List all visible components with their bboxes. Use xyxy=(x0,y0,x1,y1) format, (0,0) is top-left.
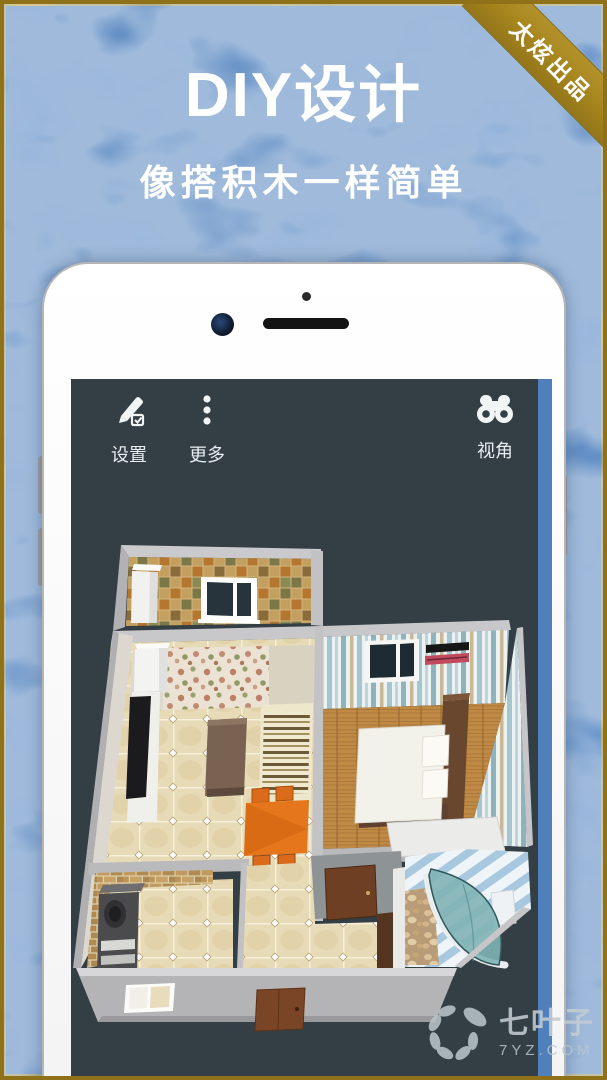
site-watermark: 七叶子 7YZ.COM xyxy=(423,997,595,1070)
pencil-edit-icon xyxy=(111,393,147,434)
settings-button[interactable]: 设置 xyxy=(111,393,147,467)
app-toolbar: 设置 更多 xyxy=(71,379,538,467)
proximity-sensor-dot xyxy=(302,292,311,301)
more-button[interactable]: 更多 xyxy=(189,393,225,467)
view-angle-label: 视角 xyxy=(477,437,513,463)
more-vertical-dots-icon xyxy=(202,393,212,434)
phone-mockup: 设置 更多 xyxy=(42,262,566,1080)
app-screen: 设置 更多 xyxy=(71,379,552,1080)
floorplan-bedroom xyxy=(323,627,533,849)
screenshot-edge-strip xyxy=(538,379,552,1080)
earpiece-speaker xyxy=(263,318,349,329)
floorplan-utility-room xyxy=(87,859,249,973)
leaf-ring-logo xyxy=(423,997,491,1070)
floorplan-kitchen xyxy=(113,545,323,631)
watermark-site-domain: 7YZ.COM xyxy=(499,1043,595,1060)
binoculars-icon xyxy=(474,393,516,430)
more-label: 更多 xyxy=(189,441,225,467)
front-camera xyxy=(211,313,234,336)
settings-label: 设置 xyxy=(111,441,147,467)
promo-page: DIY设计 像搭积木一样简单 太炫出品 xyxy=(0,0,607,1080)
view-angle-button[interactable]: 视角 xyxy=(474,393,516,463)
floorplan-front-wall xyxy=(76,968,457,1031)
floorplan-3d-view[interactable] xyxy=(71,379,544,1080)
watermark-site-name: 七叶子 xyxy=(499,1007,595,1040)
floorplan-bathroom xyxy=(393,849,531,968)
page-subtitle: 像搭积木一样简单 xyxy=(4,154,603,206)
